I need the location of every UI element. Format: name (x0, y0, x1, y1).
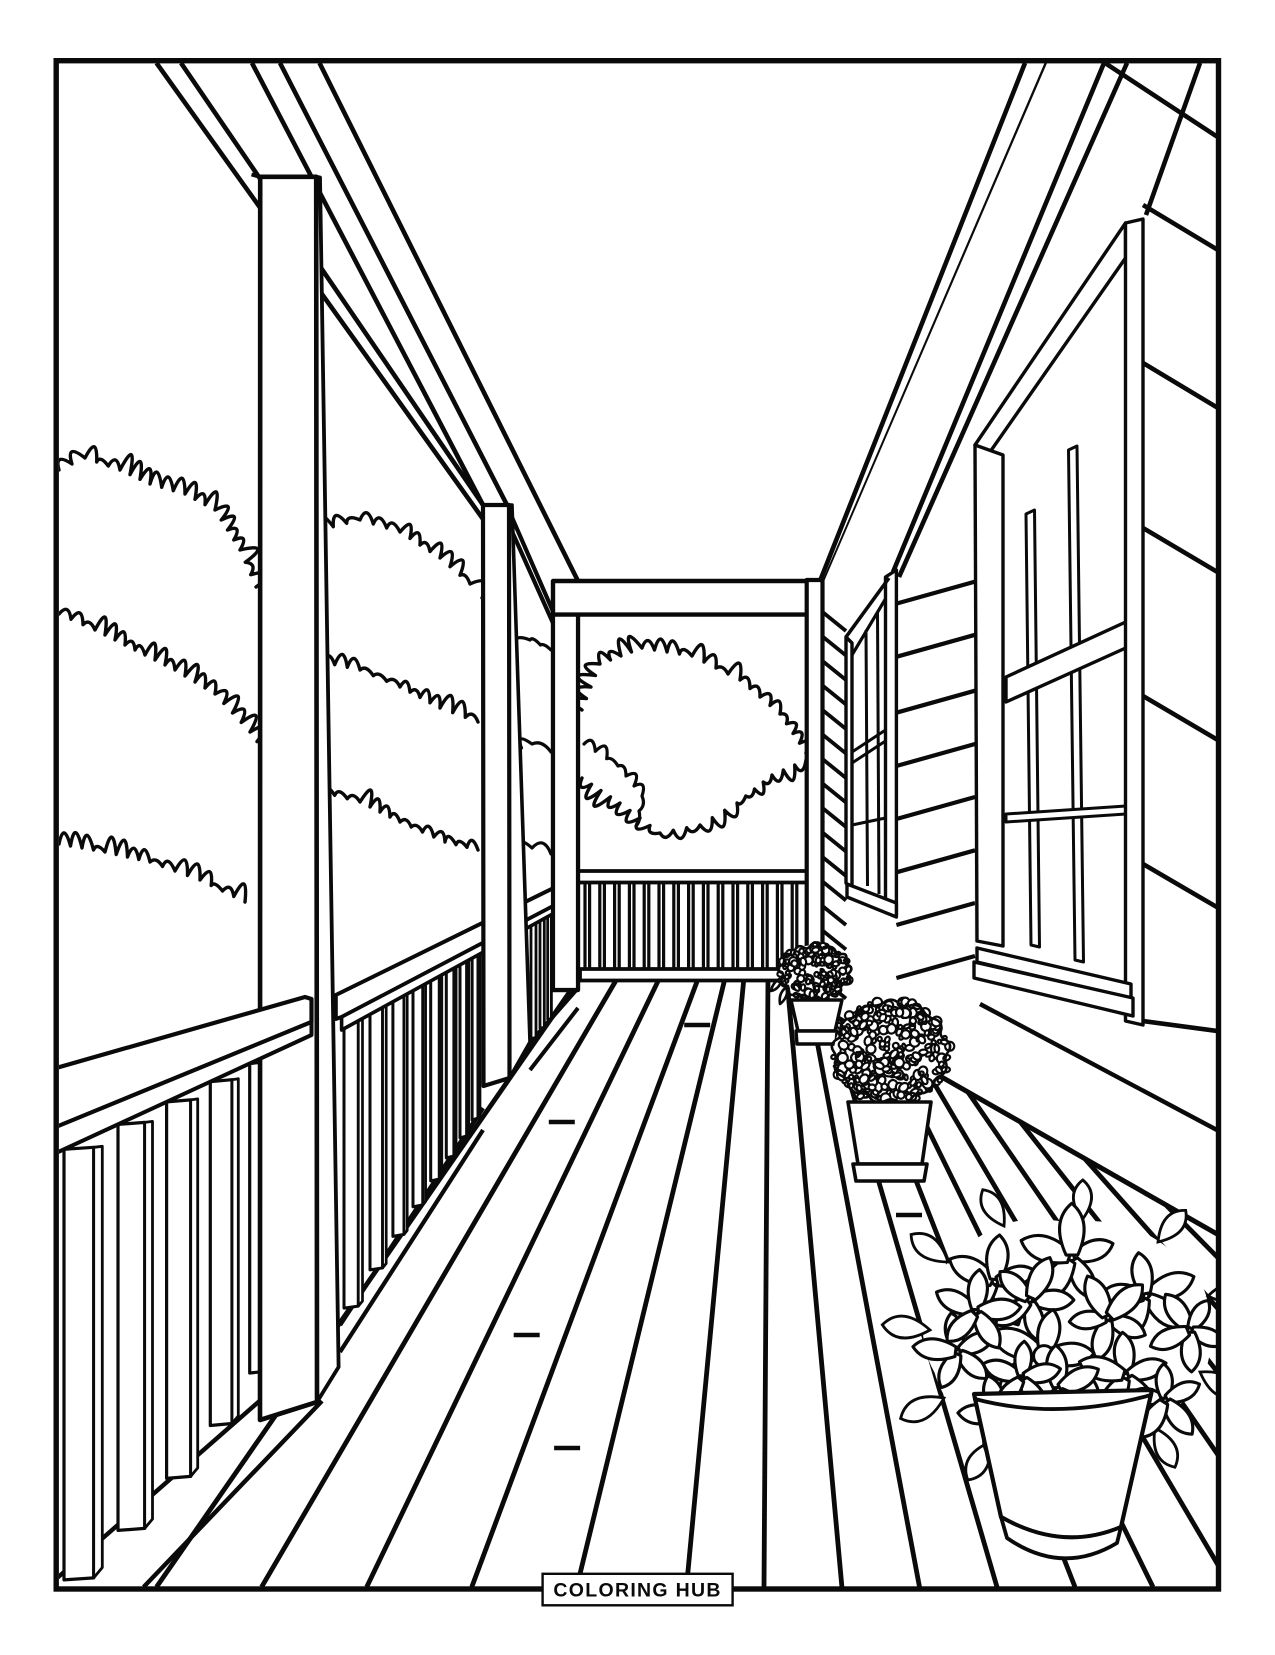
svg-text:COLORING HUB: COLORING HUB (553, 1580, 721, 1602)
